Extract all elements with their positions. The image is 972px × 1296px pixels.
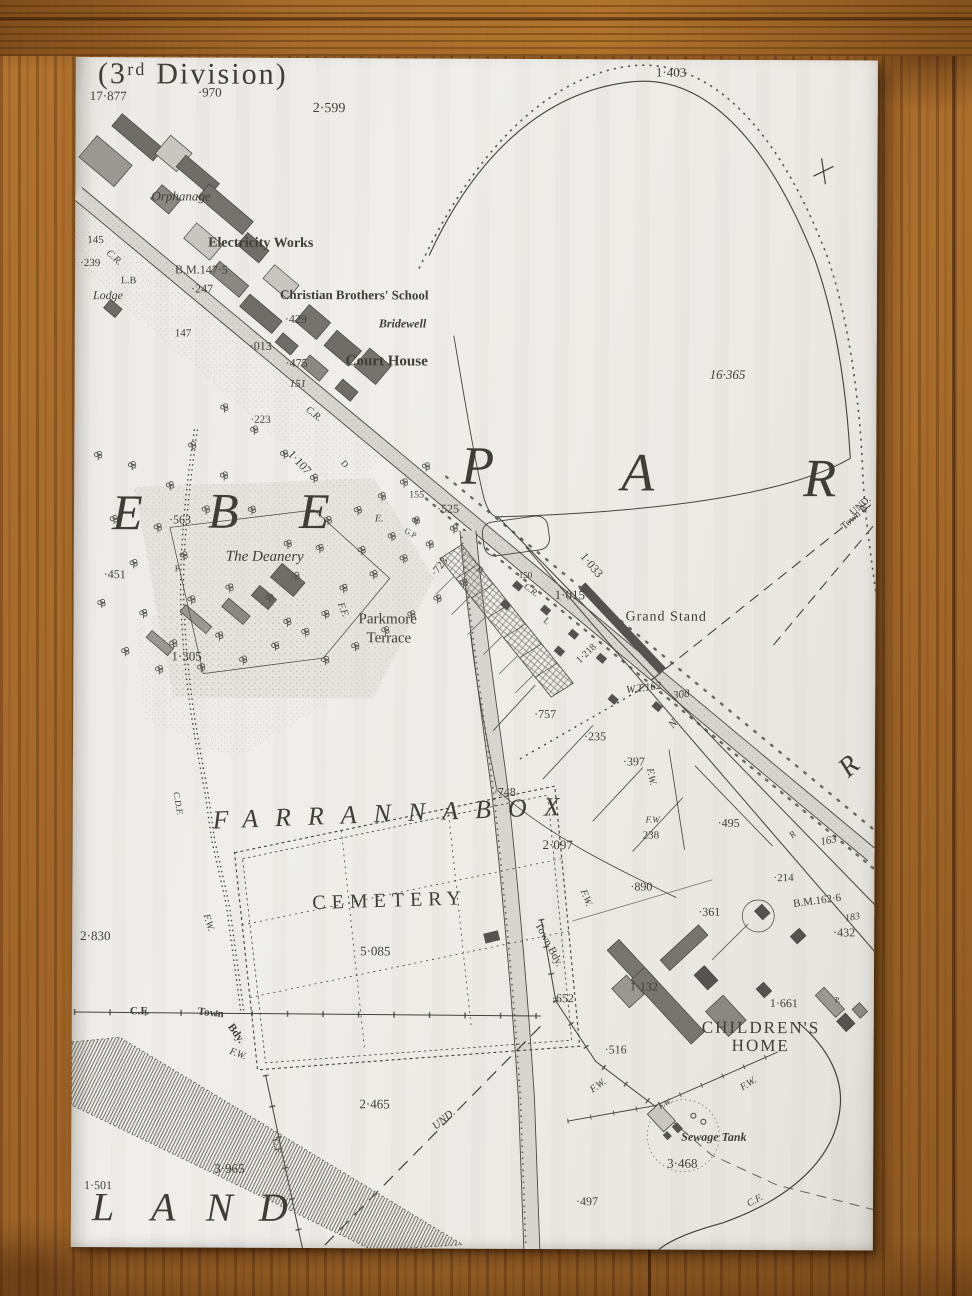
map-label: C.R.: [104, 248, 124, 267]
townland-letter: R: [834, 751, 865, 783]
map-label: C.R.: [303, 405, 323, 424]
map-label: 155: [409, 490, 424, 500]
map-label: ·475: [286, 357, 308, 369]
map-label: 183: [844, 912, 860, 924]
map-label: C.D.F.: [171, 791, 184, 816]
map-label: C.F.: [746, 1193, 765, 1210]
map-label: ·223: [250, 415, 270, 426]
map-label: 1·033: [578, 550, 605, 579]
map-label: P: [175, 564, 180, 573]
place-label-orphanage: Orphanage: [151, 189, 210, 202]
map-label: 1·305: [171, 649, 201, 662]
map-label: 5·085: [360, 944, 390, 957]
map-label: 147: [175, 328, 192, 339]
map-label: ·497: [576, 1195, 598, 1207]
map-label: ·525: [437, 503, 459, 515]
division-title: (3ʳᵈ Division): [98, 59, 288, 90]
map-label: C.R.: [522, 582, 540, 599]
map-label: C.F.: [269, 1138, 283, 1156]
map-label: 2·830: [80, 929, 110, 942]
map-label: 1·107: [286, 448, 314, 477]
map-label: 1·132: [630, 980, 658, 992]
map-label: 17·877: [90, 89, 127, 102]
map-label: ·563: [169, 513, 191, 525]
townland-letter: D: [259, 1188, 288, 1228]
plank-seam: [0, 17, 972, 20]
map-label: ·516: [605, 1043, 627, 1055]
map-label: 1·661: [770, 997, 798, 1009]
townland-letter: N: [206, 1188, 233, 1228]
map-label: ·451: [104, 568, 126, 580]
map-label: E.: [375, 514, 384, 524]
townland-letter: E: [299, 486, 330, 536]
place-label-parkmore-terrace: Terrace: [366, 631, 411, 646]
map-page: (3ʳᵈ Division)17·877·9702·599OrphanageEl…: [71, 57, 878, 1250]
map-label: ·652: [552, 992, 574, 1004]
map-label: L: [542, 616, 552, 626]
map-label: F.W.: [657, 1097, 673, 1111]
map-label: F.W.: [589, 1077, 609, 1095]
map-label: P.: [835, 996, 841, 1004]
map-label: F.W.: [644, 767, 657, 786]
map-label: ·432: [833, 926, 855, 938]
place-label-grand-stand: Grand Stand: [626, 610, 707, 624]
place-label-bridewell: Bridewell: [379, 317, 426, 329]
benchmark: B.M.147·5: [175, 263, 228, 275]
place-label-parkmore-terrace: Parkmore: [359, 612, 417, 627]
benchmark: B.M.162·6: [793, 893, 842, 910]
map-label: B.: [475, 565, 487, 577]
map-label: D: [339, 459, 350, 470]
map-label: F.W.: [200, 913, 215, 932]
map-label: 2·465: [359, 1097, 389, 1110]
map-label: ·970: [198, 86, 222, 99]
place-label-electricity-works: Electricity Works: [208, 237, 313, 251]
townland-letter: B: [208, 486, 239, 536]
boundary-label: C.F.: [130, 1006, 149, 1017]
map-label: F.F.: [335, 601, 350, 618]
map-label: ·429: [285, 313, 307, 325]
boundary-label: Bdy.: [225, 1022, 246, 1046]
place-label-childrens-home: HOME: [732, 1037, 790, 1054]
place-label-school: Christian Brothers' School: [280, 288, 429, 302]
townland-letter: L: [92, 1187, 114, 1227]
map-label: 1·218: [575, 642, 599, 665]
map-label: ·361: [698, 906, 720, 918]
map-label: ·013: [250, 340, 272, 352]
map-label: F.W: [646, 815, 660, 824]
map-label: R: [788, 830, 798, 840]
place-label-sewage-tank: Sewage Tank: [681, 1131, 746, 1143]
map-label: 308: [672, 688, 690, 701]
map-label: N: [667, 718, 680, 731]
wood-plank-top: [0, 0, 972, 56]
map-label: W.T.162: [625, 681, 662, 697]
map-label: U: [413, 517, 419, 525]
map-label: F.W.: [739, 1076, 759, 1094]
map-label: 3·965: [214, 1162, 244, 1175]
map-label: 3·468: [667, 1157, 697, 1170]
townland-letter: P: [461, 439, 494, 493]
map-label: ·890: [630, 880, 652, 892]
plank-seam: [952, 56, 955, 1296]
map-label: 2·599: [313, 102, 346, 116]
map-label: 150: [519, 571, 533, 580]
map-label: ·397: [623, 755, 645, 767]
townland-name-farrannabox: FARRANNABOX: [212, 793, 577, 833]
place-label-lodge: Lodge: [93, 289, 123, 301]
map-labels: (3ʳᵈ Division)17·877·9702·599OrphanageEl…: [71, 57, 878, 1250]
place-label-deanery: The Deanery: [226, 550, 304, 565]
map-label: ·235: [584, 730, 606, 742]
map-label: ·723: [429, 556, 450, 579]
boundary-label: Town: [197, 1007, 224, 1021]
map-label: ·214: [773, 873, 793, 884]
map-label: 2·097: [543, 838, 573, 851]
map-label: G.P: [403, 527, 418, 540]
townland-letter: A: [621, 445, 654, 499]
map-label: ·757: [534, 708, 556, 720]
map-label: 1·403: [656, 66, 686, 79]
map-label: 238: [643, 830, 660, 841]
map-label: ·239: [80, 258, 100, 269]
map-label: 145: [87, 235, 104, 246]
map-label: 16·365: [710, 368, 746, 381]
place-label-childrens-home: CHILDREN'S: [702, 1019, 821, 1037]
map-label: ·495: [718, 817, 740, 829]
map-label: 151: [290, 379, 307, 390]
map-label: ·247: [191, 283, 213, 295]
place-label-cemetery: CEMETERY: [312, 888, 467, 913]
townland-letter: R: [803, 451, 836, 505]
map-label: L.B: [121, 276, 136, 286]
map-label: F.W.: [578, 888, 594, 908]
place-label-court-house: Court House: [346, 354, 428, 369]
map-label: UND.: [431, 1107, 458, 1132]
townland-letter: A: [151, 1187, 176, 1227]
map-label: 1·015: [555, 588, 585, 601]
map-label: F.W.: [228, 1047, 248, 1062]
townland-letter: E: [112, 487, 143, 537]
boundary-label: Town Bdy.: [532, 921, 564, 969]
map-label: 163: [819, 834, 837, 848]
